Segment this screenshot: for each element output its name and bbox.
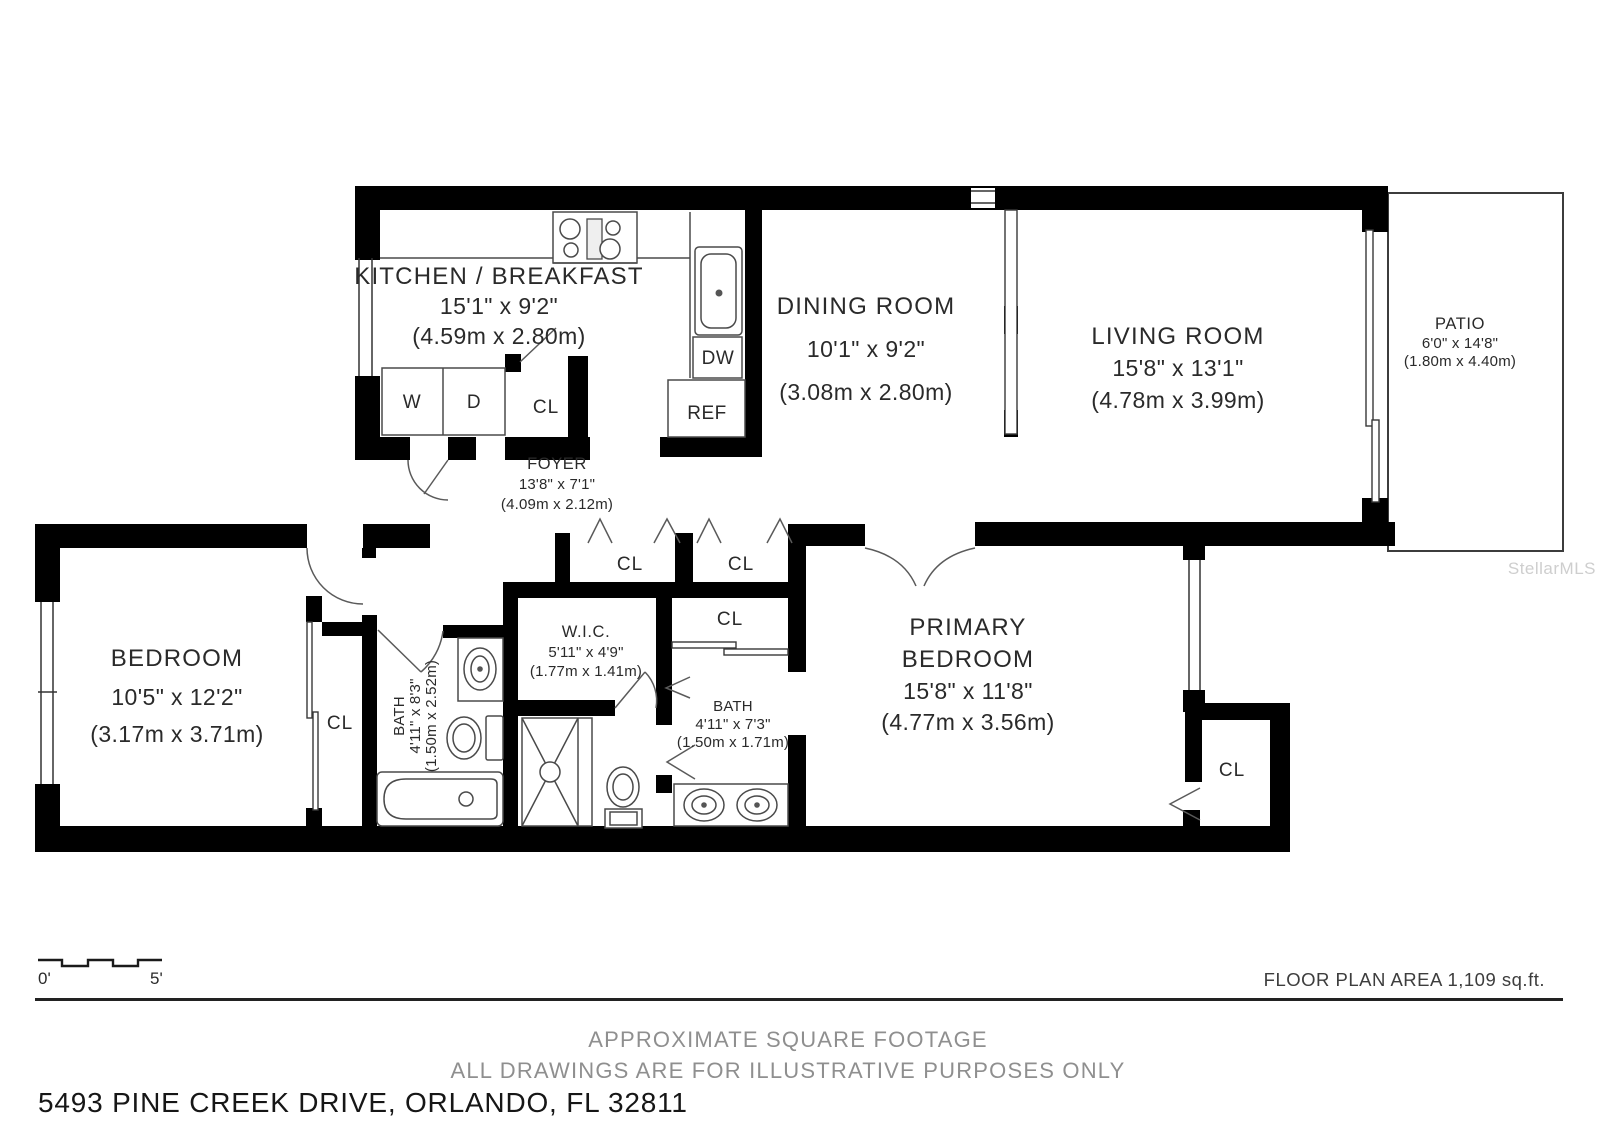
hall-closet1-label: CL [617,554,643,575]
primary-closet-label: CL [1219,760,1245,781]
svg-text:(4.09m x 2.12m): (4.09m x 2.12m) [501,496,613,513]
hall-closet2-label: CL [728,554,754,575]
svg-text:10'5" x 12'2": 10'5" x 12'2" [111,684,242,710]
svg-text:(4.59m x 2.80m): (4.59m x 2.80m) [412,323,585,349]
svg-text:15'1" x 9'2": 15'1" x 9'2" [440,293,558,319]
bath1-sink [458,638,503,701]
dining-label: DINING ROOM 10'1" x 9'2" (3.08m x 2.80m) [777,293,956,405]
svg-text:W.I.C.: W.I.C. [562,623,611,641]
kitchen-closet-label: CL [533,397,559,418]
svg-text:PATIO: PATIO [1435,315,1485,333]
svg-text:BATH: BATH [713,698,753,715]
svg-text:BEDROOM: BEDROOM [902,646,1034,673]
svg-text:(1.80m x 4.40m): (1.80m x 4.40m) [1404,353,1516,370]
svg-text:15'8" x 13'1": 15'8" x 13'1" [1112,355,1243,381]
scale-end-label: 5' [150,969,163,988]
svg-text:BEDROOM: BEDROOM [111,645,243,672]
svg-text:15'8" x 11'8": 15'8" x 11'8" [903,678,1033,704]
dining-living-divider [1005,210,1017,434]
svg-text:(1.77m x 1.41m): (1.77m x 1.41m) [530,663,642,680]
svg-text:10'1" x 9'2": 10'1" x 9'2" [807,336,925,362]
primary-window [1189,560,1200,690]
svg-text:4'11" x 7'3": 4'11" x 7'3" [695,716,770,733]
bath1-toilet [447,716,503,760]
footer: 0' 5' FLOOR PLAN AREA 1,109 sq.ft. APPRO… [35,960,1563,1118]
bedroom-window [38,602,57,784]
svg-text:BATH: BATH [391,696,408,736]
dining-top-window [971,188,995,208]
bath2-toilet [605,767,642,828]
primary-label: PRIMARY BEDROOM 15'8" x 11'8" (4.77m x 3… [881,614,1054,735]
svg-text:(3.17m x 3.71m): (3.17m x 3.71m) [90,721,263,747]
shower [522,718,592,826]
living-label: LIVING ROOM 15'8" x 13'1" (4.78m x 3.99m… [1091,323,1264,413]
svg-text:(4.78m x 3.99m): (4.78m x 3.99m) [1091,387,1264,413]
washer-dryer [382,368,505,435]
bedroom-label: BEDROOM 10'5" x 12'2" (3.17m x 3.71m) [90,645,263,747]
dishwasher-label: DW [702,348,735,369]
svg-text:5'11" x 4'9": 5'11" x 4'9" [548,644,623,661]
svg-text:6'0" x 14'8": 6'0" x 14'8" [1422,335,1498,352]
bath2-label: BATH 4'11" x 7'3" (1.50m x 1.71m) [677,698,789,751]
bedroom-closet-sliding-door [307,622,318,810]
washer-label: W [403,392,421,413]
primary-double-doors [865,548,975,586]
patio-sliding-door [1366,230,1379,502]
refrigerator-label: REF [687,403,727,424]
svg-text:(1.50m x 1.71m): (1.50m x 1.71m) [677,734,789,751]
floor-plan-canvas: KITCHEN / BREAKFAST 15'1" x 9'2" (4.59m … [0,0,1600,1130]
bath2-double-vanity [674,784,788,826]
scale-start-label: 0' [38,969,51,988]
kitchen-sink [695,247,742,335]
scale-bar: 0' 5' [38,960,163,988]
svg-text:DINING ROOM: DINING ROOM [777,293,956,320]
foyer-label: FOYER 13'8" x 7'1" (4.09m x 2.12m) [501,455,613,513]
entry-door [408,460,448,500]
svg-text:4'11" x 8'3": 4'11" x 8'3" [407,678,424,753]
hall-closet3-label: CL [717,609,743,630]
floor-plan-area-note: FLOOR PLAN AREA 1,109 sq.ft. [1264,969,1545,990]
kitchen-label: KITCHEN / BREAKFAST 15'1" x 9'2" (4.59m … [354,263,644,349]
svg-text:(3.08m x 2.80m): (3.08m x 2.80m) [779,379,952,405]
svg-text:(1.50m x 2.52m): (1.50m x 2.52m) [423,660,440,772]
bedroom-door [307,548,363,604]
disclaimer-line1: APPROXIMATE SQUARE FOOTAGE [588,1027,988,1052]
disclaimer-line2: ALL DRAWINGS ARE FOR ILLUSTRATIVE PURPOS… [451,1058,1126,1083]
watermark: StellarMLS [1508,559,1596,578]
floor-plan-page: KITCHEN / BREAKFAST 15'1" x 9'2" (4.59m … [0,0,1600,1130]
bath1-label: BATH 4'11" x 8'3" (1.50m x 2.52m) [391,660,440,772]
stove [553,212,637,263]
property-address: 5493 PINE CREEK DRIVE, ORLANDO, FL 32811 [38,1087,688,1118]
dryer-label: D [467,392,481,413]
patio-outline [1388,193,1563,551]
svg-text:13'8" x 7'1": 13'8" x 7'1" [519,476,595,493]
bathtub [377,772,503,826]
wic-label: W.I.C. 5'11" x 4'9" (1.77m x 1.41m) [530,623,642,680]
svg-text:KITCHEN / BREAKFAST: KITCHEN / BREAKFAST [354,263,644,290]
bedroom-closet-label: CL [327,713,353,734]
svg-text:(4.77m x 3.56m): (4.77m x 3.56m) [881,709,1054,735]
svg-text:PRIMARY: PRIMARY [909,614,1026,641]
hall-closet-sliding-door [672,642,788,655]
svg-text:LIVING ROOM: LIVING ROOM [1091,323,1264,350]
svg-text:FOYER: FOYER [527,455,587,473]
footer-divider [35,998,1563,1001]
